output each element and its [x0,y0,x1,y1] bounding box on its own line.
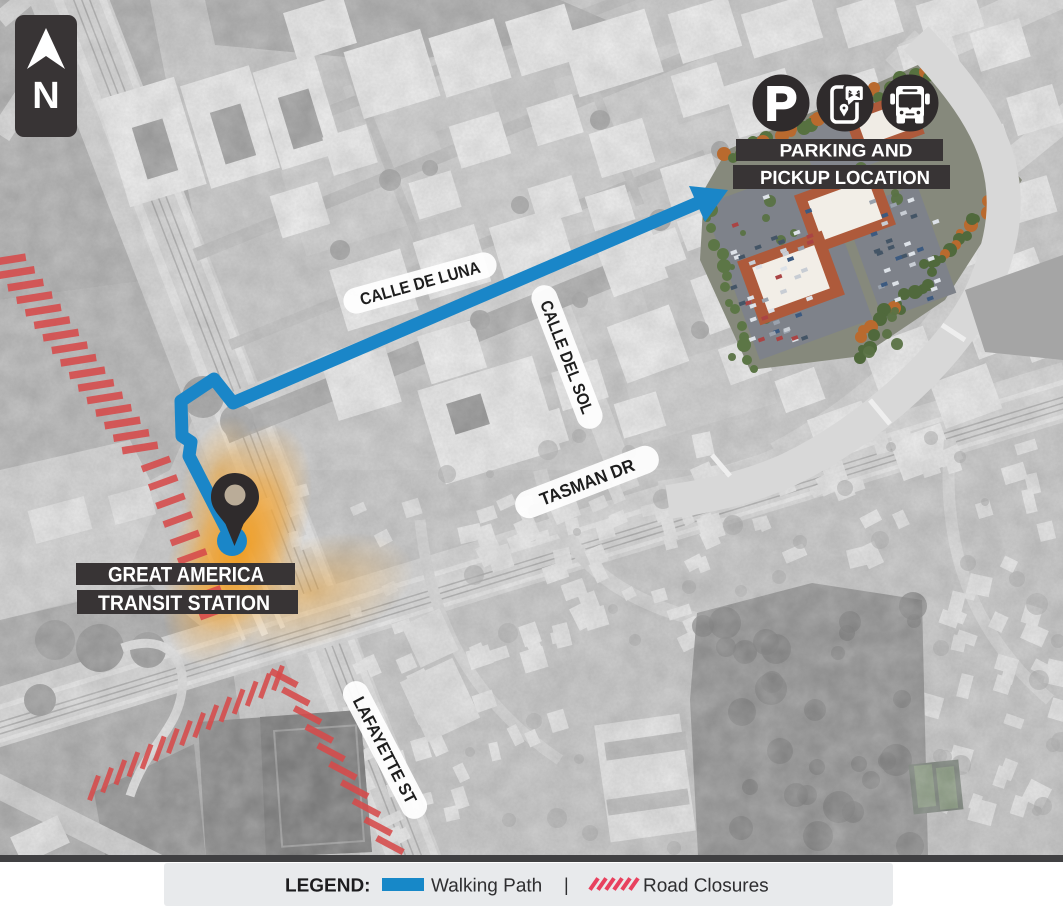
svg-text:Road Closures: Road Closures [643,876,769,897]
svg-text:PICKUP LOCATION: PICKUP LOCATION [760,168,930,189]
svg-text:N: N [32,75,59,117]
svg-text:LEGEND:: LEGEND: [285,876,371,897]
svg-text:TRANSIT STATION: TRANSIT STATION [98,592,270,615]
svg-text:GREAT AMERICA: GREAT AMERICA [108,563,264,586]
svg-text:P: P [765,78,797,131]
svg-text:PARKING AND: PARKING AND [779,140,912,160]
svg-text:Walking Path: Walking Path [431,876,542,897]
svg-text:|: | [564,875,569,895]
